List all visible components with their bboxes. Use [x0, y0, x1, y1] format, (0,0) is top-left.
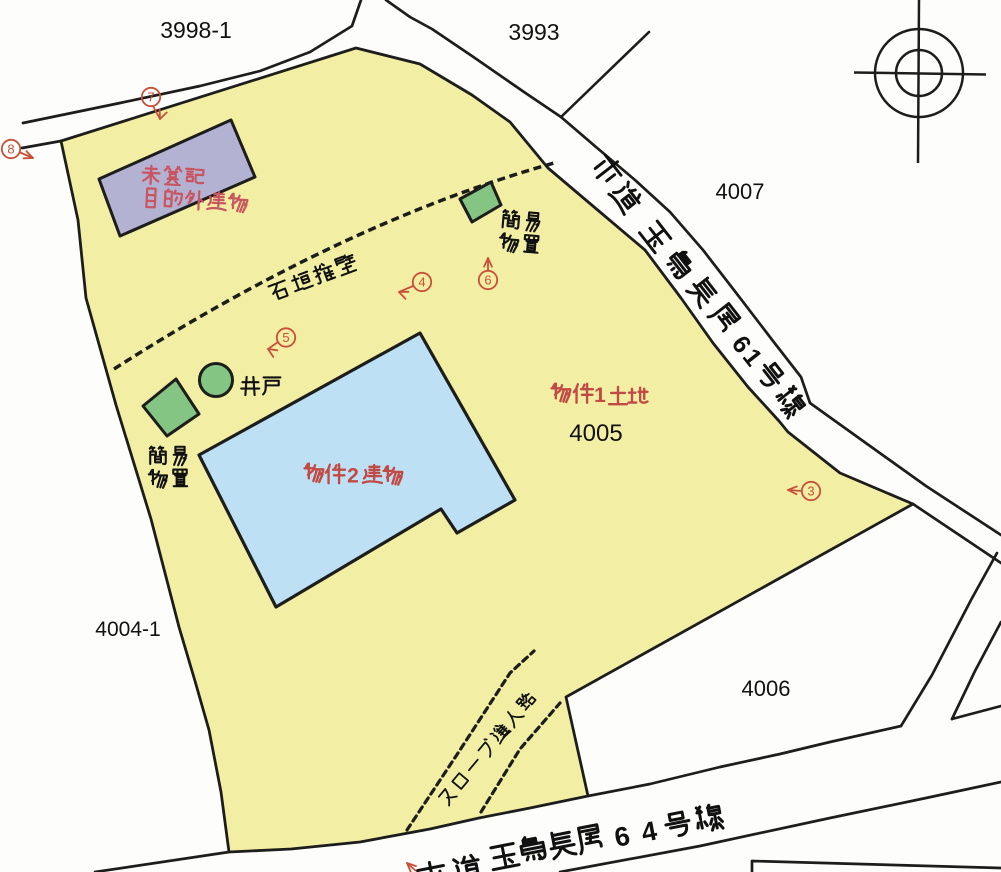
svg-text:3993: 3993 — [508, 19, 559, 45]
svg-text:6: 6 — [484, 273, 491, 288]
svg-text:3: 3 — [807, 484, 814, 499]
svg-text:2: 2 — [347, 465, 359, 488]
svg-text:4004-1: 4004-1 — [95, 618, 160, 641]
svg-text:4007: 4007 — [716, 179, 765, 204]
svg-text:7: 7 — [147, 90, 154, 105]
svg-text:3998-1: 3998-1 — [160, 17, 232, 43]
svg-text:1: 1 — [594, 384, 606, 407]
svg-text:4006: 4006 — [742, 676, 791, 701]
svg-text:4: 4 — [418, 275, 425, 290]
svg-text:5: 5 — [282, 330, 289, 345]
svg-text:8: 8 — [7, 142, 14, 157]
svg-text:4005: 4005 — [569, 420, 622, 447]
